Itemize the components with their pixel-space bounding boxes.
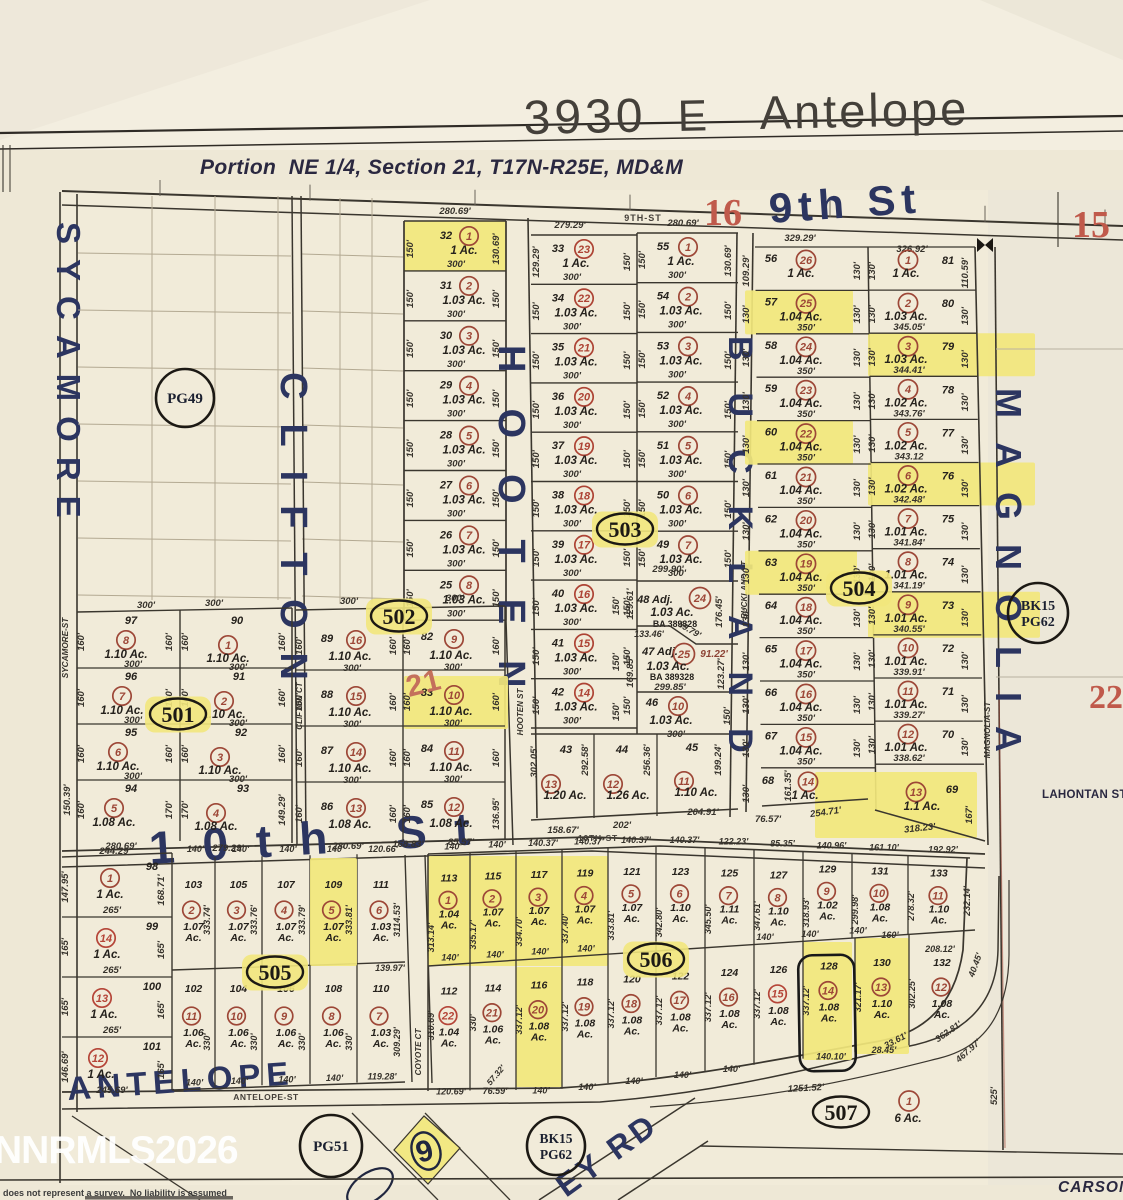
svg-text:16: 16 [350,635,363,647]
svg-text:130': 130' [867,434,878,453]
svg-text:280.69': 280.69' [666,218,699,229]
svg-text:130': 130' [741,695,752,714]
svg-text:150': 150' [531,597,542,616]
svg-text:330': 330' [249,1033,259,1051]
svg-text:18: 18 [800,602,813,614]
svg-text:130': 130' [867,477,878,496]
svg-text:PG51: PG51 [313,1139,349,1155]
svg-text:204.91': 204.91' [686,807,719,818]
svg-text:300': 300' [563,272,582,283]
svg-text:506: 506 [640,947,673,972]
svg-text:300': 300' [447,459,466,470]
svg-text:150': 150' [637,300,648,319]
svg-text:10: 10 [672,701,685,713]
svg-text:160': 160' [388,804,399,823]
svg-text:1.10 Ac.: 1.10 Ac. [328,763,371,775]
svg-text:12: 12 [448,802,460,814]
svg-text:78: 78 [942,384,955,396]
svg-text:165': 165' [60,937,71,956]
svg-text:4: 4 [465,381,472,393]
svg-text:130': 130' [741,565,752,584]
svg-text:76.57': 76.57' [755,814,782,825]
svg-text:150': 150' [637,449,648,468]
svg-text:150': 150' [622,252,633,271]
svg-text:1 Ac.: 1 Ac. [93,949,120,961]
svg-text:341.19': 341.19' [893,581,925,592]
svg-text:Ac.: Ac. [277,932,294,944]
svg-text:140': 140' [232,844,250,854]
svg-text:150': 150' [531,400,542,419]
svg-text:1.08 Ac.: 1.08 Ac. [429,818,472,830]
svg-text:130': 130' [960,651,971,670]
svg-text:15: 15 [1072,204,1110,246]
svg-text:127: 127 [770,870,789,882]
svg-text:150': 150' [622,548,633,567]
svg-text:130': 130' [960,393,971,412]
svg-text:300': 300' [444,774,463,785]
svg-text:132: 132 [933,957,951,969]
svg-text:16: 16 [704,192,742,234]
svg-text:300': 300' [447,558,466,569]
svg-text:17: 17 [673,995,686,1007]
svg-text:337.12': 337.12' [560,1001,570,1032]
svg-text:Ac.: Ac. [820,1013,837,1025]
svg-text:300': 300' [447,509,466,520]
svg-text:Ac.: Ac. [818,910,835,922]
svg-text:133.46': 133.46' [634,629,665,639]
svg-text:19: 19 [578,1001,591,1013]
svg-text:340.55': 340.55' [893,624,925,635]
svg-text:74: 74 [942,557,954,569]
svg-text:350': 350' [797,453,816,464]
svg-text:41: 41 [551,637,564,649]
svg-text:12: 12 [902,729,914,741]
svg-text:21: 21 [485,1008,498,1020]
svg-text:30: 30 [440,330,453,342]
svg-text:150': 150' [531,696,542,715]
svg-text:161.35': 161.35' [783,770,794,802]
svg-text:8: 8 [466,580,473,592]
svg-text:Ac.: Ac. [671,1022,688,1034]
svg-text:60: 60 [765,427,778,439]
svg-text:150': 150' [405,389,416,408]
svg-text:13: 13 [350,803,362,815]
svg-text:140.37': 140.37' [670,835,701,845]
svg-text:7: 7 [905,513,912,525]
svg-text:140': 140' [187,844,205,854]
svg-text:94: 94 [125,783,137,795]
svg-text:20: 20 [577,392,591,404]
svg-text:119: 119 [577,868,594,880]
svg-text:300': 300' [343,663,362,674]
svg-text:PG49: PG49 [167,391,203,407]
svg-text:300': 300' [137,600,156,611]
svg-text:5: 5 [905,427,912,439]
svg-text:11: 11 [186,1011,197,1023]
svg-text:160': 160' [277,688,288,707]
svg-text:150': 150' [405,489,416,508]
svg-text:87: 87 [321,745,334,757]
svg-text:300': 300' [343,775,362,786]
svg-text:170': 170' [180,800,191,819]
svg-text:300': 300' [668,270,687,281]
svg-text:6: 6 [466,480,473,492]
svg-text:24: 24 [799,342,812,354]
svg-text:Ac.: Ac. [930,915,947,927]
svg-text:11: 11 [902,686,913,698]
svg-text:114: 114 [485,983,502,995]
svg-text:130': 130' [852,305,863,324]
svg-text:1 Ac.: 1 Ac. [450,245,477,257]
svg-text:140': 140' [444,841,462,851]
svg-text:Ac.: Ac. [484,1035,501,1047]
svg-text:337.40': 337.40' [560,913,570,944]
svg-text:Ac.: Ac. [229,932,246,944]
svg-text:140': 140' [231,1076,249,1086]
svg-text:40: 40 [551,588,565,600]
svg-text:335.17': 335.17' [468,919,478,950]
svg-text:Ac.: Ac. [184,1038,201,1050]
svg-text:300': 300' [447,359,466,370]
svg-text:36: 36 [552,391,565,403]
svg-text:1.03 Ac.: 1.03 Ac. [554,406,597,418]
svg-text:119.28': 119.28' [368,1072,398,1082]
svg-text:118: 118 [577,977,594,989]
svg-text:Ac.: Ac. [576,915,593,927]
svg-text:120.69': 120.69' [436,1087,467,1097]
svg-text:49: 49 [656,539,670,551]
svg-text:130': 130' [741,652,752,671]
svg-text:47 Adj.: 47 Adj. [641,646,678,658]
svg-text:7: 7 [466,530,473,542]
svg-text:3: 3 [217,752,223,764]
svg-text:130': 130' [867,520,878,539]
svg-text:165': 165' [156,940,167,959]
svg-text:329.29': 329.29' [784,233,816,244]
svg-text:300': 300' [444,718,463,729]
svg-text:278.32': 278.32' [906,890,916,922]
svg-text:1.08 Ac.: 1.08 Ac. [92,817,135,829]
svg-text:256.36': 256.36' [642,744,653,777]
svg-text:1: 1 [466,231,472,243]
svg-text:88: 88 [321,689,334,701]
svg-text:Ac.: Ac. [671,913,688,925]
svg-text:149.29': 149.29' [277,794,288,826]
svg-text:140': 140' [625,1076,643,1086]
svg-text:BK15: BK15 [539,1131,572,1146]
svg-text:1.03 Ac.: 1.03 Ac. [554,554,597,566]
svg-text:1251.52': 1251.52' [787,1082,825,1095]
svg-text:150': 150' [622,449,633,468]
svg-text:52: 52 [657,390,669,402]
svg-text:130': 130' [741,608,752,627]
svg-text:202': 202' [612,820,632,831]
svg-text:347.61': 347.61' [752,900,762,931]
svg-text:11: 11 [678,776,689,788]
svg-text:130': 130' [960,436,971,455]
svg-text:160': 160' [277,744,288,763]
svg-text:14: 14 [350,747,362,759]
svg-text:71: 71 [942,686,954,698]
svg-text:350': 350' [797,626,816,637]
svg-text:Ac.: Ac. [372,932,389,944]
svg-text:130': 130' [960,306,971,325]
svg-text:130': 130' [852,435,863,454]
svg-text:53: 53 [657,340,669,352]
svg-text:25: 25 [799,298,813,310]
svg-text:140': 140' [531,947,549,957]
svg-text:64: 64 [765,600,777,612]
svg-text:300': 300' [447,309,466,320]
svg-text:1.08 Ac.: 1.08 Ac. [328,819,371,831]
svg-text:61: 61 [765,470,777,482]
svg-text:109.29': 109.29' [741,255,752,287]
svg-text:PG62: PG62 [1021,615,1054,630]
svg-text:160': 160' [76,744,87,763]
svg-text:136.95': 136.95' [491,798,502,830]
svg-text:504: 504 [843,576,876,601]
svg-text:42: 42 [551,687,564,699]
svg-text:28: 28 [439,430,453,442]
svg-text:25: 25 [439,579,453,591]
svg-text:160': 160' [881,930,899,940]
svg-text:3114.53': 3114.53' [392,902,402,937]
svg-text:147.95': 147.95' [60,871,71,903]
svg-text:17: 17 [800,645,813,657]
svg-text:Ac.: Ac. [440,1038,457,1050]
svg-text:1.03 Ac.: 1.03 Ac. [659,455,702,467]
svg-text:8: 8 [774,892,781,904]
svg-text:343.12: 343.12 [894,451,924,462]
svg-text:129.61': 129.61' [625,588,636,620]
svg-text:9: 9 [823,886,830,898]
svg-text:25: 25 [677,649,691,661]
svg-text:124: 124 [721,967,739,979]
svg-text:140': 140' [279,844,297,854]
svg-text:150': 150' [405,439,416,458]
svg-text:337.12': 337.12' [703,992,713,1023]
svg-text:160': 160' [491,748,502,767]
svg-text:Ac.: Ac. [229,1038,246,1050]
svg-text:160': 160' [164,744,175,763]
svg-text:333.74': 333.74' [202,904,212,935]
svg-text:SYCAMORE: SYCAMORE [50,222,87,533]
svg-text:150': 150' [531,499,542,518]
svg-text:117: 117 [531,869,549,881]
svg-text:16: 16 [722,992,735,1004]
svg-text:Ac.: Ac. [623,1026,640,1038]
svg-text:1.03 Ac.: 1.03 Ac. [659,505,702,517]
svg-text:337.12': 337.12' [606,998,616,1029]
svg-text:1 Ac.: 1 Ac. [787,268,814,280]
svg-text:1 Ac.: 1 Ac. [562,258,589,270]
svg-text:160': 160' [388,692,399,711]
svg-text:NNRMLS2026: NNRMLS2026 [0,1129,238,1172]
svg-text:310.69': 310.69' [426,1010,436,1041]
svg-text:1.08 Ac.: 1.08 Ac. [194,821,237,833]
svg-text:96: 96 [125,671,138,683]
svg-text:5: 5 [466,430,473,442]
svg-text:Ac.: Ac. [933,1009,950,1021]
svg-text:20: 20 [531,1004,545,1016]
svg-text:1.10 Ac.: 1.10 Ac. [328,707,371,719]
svg-text:85.35': 85.35' [770,839,796,849]
svg-text:5: 5 [685,441,692,453]
svg-text:89: 89 [321,633,334,645]
svg-text:130': 130' [741,478,752,497]
svg-text:140': 140' [186,1077,204,1087]
svg-text:150': 150' [531,351,542,370]
svg-text:7: 7 [685,540,692,552]
svg-text:Antelope: Antelope [759,82,970,139]
svg-text:123: 123 [672,866,690,878]
svg-text:22: 22 [441,1010,454,1022]
svg-text:1.03 Ac.: 1.03 Ac. [650,607,693,619]
svg-text:130': 130' [741,391,752,410]
svg-text:13: 13 [545,779,557,791]
svg-text:150': 150' [622,351,633,370]
svg-text:292.58': 292.58' [580,744,591,777]
svg-text:Ac.: Ac. [720,1019,737,1031]
svg-text:130.69': 130.69' [723,245,734,277]
svg-text:140': 140' [756,932,774,942]
svg-text:300': 300' [563,716,582,727]
svg-text:192.92': 192.92' [928,845,959,855]
svg-text:505: 505 [259,960,292,985]
svg-text:318.93': 318.93' [801,897,811,928]
svg-text:93: 93 [237,783,249,795]
svg-text:29: 29 [439,380,453,392]
svg-text:244.29': 244.29' [98,846,131,857]
svg-text:300': 300' [446,593,465,604]
svg-text:300': 300' [668,419,687,430]
svg-text:140': 140' [801,929,819,939]
svg-text:8: 8 [328,1011,335,1023]
svg-text:150': 150' [405,339,416,358]
svg-text:350': 350' [797,670,816,681]
svg-text:150': 150' [531,302,542,321]
svg-text:501: 501 [162,702,195,727]
svg-text:150': 150' [637,350,648,369]
svg-text:345.50': 345.50' [703,904,713,935]
svg-text:350': 350' [797,322,816,333]
svg-text:130': 130' [867,735,878,754]
svg-text:13: 13 [96,993,108,1005]
svg-text:12: 12 [607,779,619,791]
svg-text:10: 10 [873,888,886,900]
svg-text:1.10 Ac.: 1.10 Ac. [429,762,472,774]
svg-text:22: 22 [799,428,812,440]
svg-text:1 Ac.: 1 Ac. [90,1009,117,1021]
svg-text:122.23': 122.23' [719,837,750,847]
svg-text:339.91': 339.91' [893,667,925,678]
svg-text:9: 9 [451,634,458,646]
svg-text:6: 6 [905,470,912,482]
svg-text:300': 300' [668,519,687,530]
svg-text:130': 130' [852,739,863,758]
svg-text:76.59': 76.59' [483,1086,509,1096]
svg-text:1 Ac.: 1 Ac. [791,790,818,802]
svg-text:43: 43 [559,744,572,756]
svg-text:Ac.: Ac. [484,918,501,930]
svg-text:77: 77 [942,427,955,439]
svg-text:130': 130' [852,478,863,497]
svg-text:1.03 Ac.: 1.03 Ac. [554,603,597,615]
svg-text:Ac.: Ac. [324,932,341,944]
svg-text:Ac.: Ac. [720,915,737,927]
svg-text:80: 80 [942,298,955,310]
svg-text:1.03 Ac.: 1.03 Ac. [659,355,702,367]
svg-text:1.03 Ac.: 1.03 Ac. [554,702,597,714]
svg-text:130': 130' [960,694,971,713]
svg-text:6: 6 [115,747,122,759]
svg-text:2: 2 [220,696,227,708]
svg-text:140': 140' [278,1075,296,1085]
svg-text:300': 300' [668,320,687,331]
svg-text:115: 115 [485,871,502,883]
svg-text:344.41': 344.41' [893,365,925,376]
svg-text:140': 140' [327,844,345,854]
svg-text:79: 79 [942,341,955,353]
svg-text:125: 125 [721,868,739,880]
svg-text:51: 51 [657,440,669,452]
svg-text:140': 140' [723,1064,741,1074]
svg-text:140': 140' [674,1070,692,1080]
svg-text:300': 300' [668,469,687,480]
svg-text:350': 350' [797,583,816,594]
svg-text:5: 5 [111,803,118,815]
svg-text:160': 160' [164,632,175,651]
svg-text:126: 126 [770,964,788,976]
svg-text:130': 130' [867,261,878,280]
svg-text:1.03 Ac.: 1.03 Ac. [442,495,485,507]
svg-text:1 Ac.: 1 Ac. [96,889,123,901]
svg-text:150': 150' [622,302,633,321]
svg-text:LAHONTAN ST: LAHONTAN ST [1042,789,1123,801]
svg-text:1: 1 [445,895,451,907]
svg-text:7: 7 [119,691,126,703]
svg-text:232.14': 232.14' [962,885,972,917]
svg-text:5: 5 [328,905,335,917]
svg-text:330': 330' [344,1033,354,1051]
svg-text:350': 350' [797,756,816,767]
svg-text:150': 150' [531,449,542,468]
svg-text:4: 4 [580,890,587,902]
svg-text:75: 75 [942,514,955,526]
svg-text:116: 116 [531,980,548,992]
svg-text:44: 44 [615,744,628,756]
svg-text:130': 130' [741,522,752,541]
svg-text:350': 350' [797,713,816,724]
svg-text:4: 4 [684,391,691,403]
svg-text:111: 111 [373,879,389,891]
svg-text:6: 6 [685,490,692,502]
svg-text:1.03 Ac.: 1.03 Ac. [442,395,485,407]
svg-text:168.71': 168.71' [156,874,167,906]
svg-text:150': 150' [723,301,734,320]
svg-text:59: 59 [765,383,778,395]
svg-text:130': 130' [867,649,878,668]
svg-text:6: 6 [376,905,383,917]
svg-text:160': 160' [402,804,413,823]
svg-text:299.90': 299.90' [651,564,684,575]
svg-text:342.48': 342.48' [893,495,925,506]
svg-text:150': 150' [405,539,416,558]
svg-text:8: 8 [905,557,912,569]
svg-text:334.70': 334.70' [514,916,524,947]
svg-text:63: 63 [765,557,777,569]
svg-text:130': 130' [867,304,878,323]
